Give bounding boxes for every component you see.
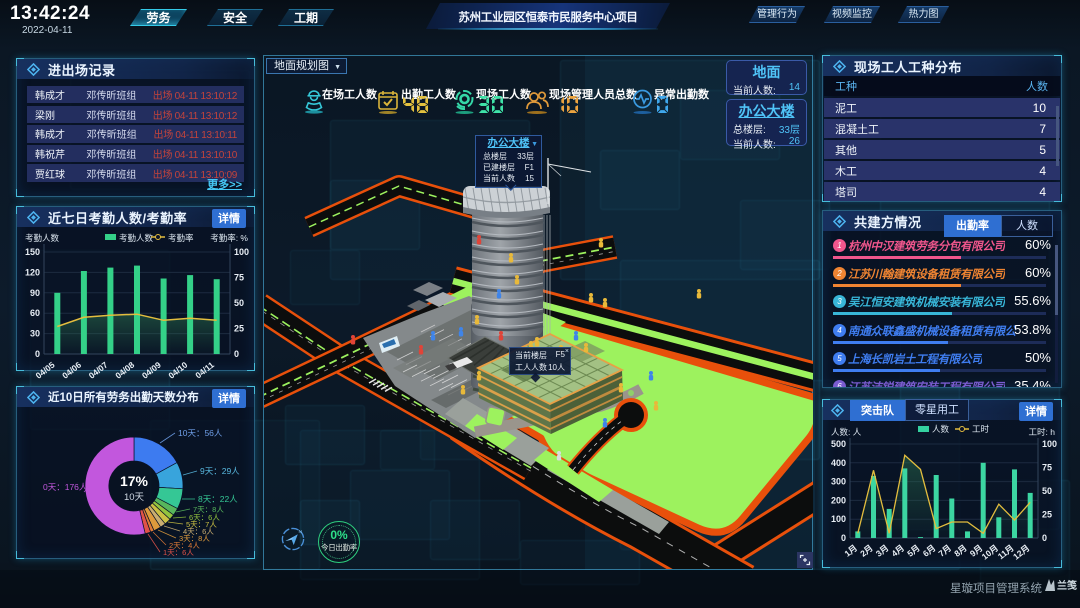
svg-text:4月: 4月 [889, 543, 906, 559]
svg-text:0: 0 [35, 349, 40, 359]
svg-text:2月: 2月 [858, 543, 875, 559]
svg-text:考勤人数: 考勤人数 [25, 233, 60, 243]
svg-text:6月: 6月 [921, 543, 938, 559]
svg-text:500: 500 [831, 439, 846, 449]
svg-text:50: 50 [1042, 486, 1052, 496]
svg-text:0: 0 [1042, 533, 1047, 543]
svg-text:0天：176人: 0天：176人 [43, 482, 88, 492]
svg-text:9天：29人: 9天：29人 [200, 466, 240, 476]
svg-text:100: 100 [234, 247, 249, 257]
svg-text:考勤人数: 考勤人数 [119, 233, 154, 243]
svg-text:400: 400 [831, 458, 846, 468]
svg-text:0: 0 [234, 349, 239, 359]
svg-text:工时: 工时 [972, 424, 990, 434]
svg-text:100: 100 [1042, 439, 1057, 449]
svg-text:17%: 17% [120, 473, 149, 489]
svg-text:60: 60 [30, 308, 40, 318]
svg-text:150: 150 [25, 247, 40, 257]
svg-text:25: 25 [234, 324, 244, 334]
svg-text:0: 0 [841, 533, 846, 543]
svg-text:5月: 5月 [905, 543, 922, 559]
svg-text:8月: 8月 [952, 543, 969, 559]
svg-text:100: 100 [831, 514, 846, 524]
svg-text:75: 75 [234, 273, 244, 283]
svg-text:90: 90 [30, 288, 40, 298]
svg-text:3月: 3月 [874, 543, 891, 559]
svg-text:7月: 7月 [936, 543, 953, 559]
svg-text:200: 200 [831, 495, 846, 505]
svg-text:考勤率: %: 考勤率: % [210, 233, 248, 243]
svg-text:人数: 人数 [932, 424, 950, 434]
svg-text:10天：56人: 10天：56人 [178, 428, 223, 438]
svg-text:300: 300 [831, 477, 846, 487]
svg-text:25: 25 [1042, 510, 1052, 520]
svg-text:12月: 12月 [1011, 543, 1031, 562]
svg-text:1天：6人: 1天：6人 [163, 548, 194, 557]
svg-text:8天：22人: 8天：22人 [198, 494, 238, 504]
svg-text:30: 30 [30, 329, 40, 339]
svg-text:50: 50 [234, 298, 244, 308]
svg-text:人数: 人: 人数: 人 [831, 427, 862, 437]
svg-text:兰笺: 兰笺 [1057, 579, 1077, 592]
svg-text:75: 75 [1042, 463, 1052, 473]
svg-text:考勤率: 考勤率 [168, 233, 194, 243]
svg-text:N: N [298, 529, 302, 535]
svg-text:工时: h: 工时: h [1029, 427, 1056, 437]
svg-text:120: 120 [25, 267, 40, 277]
svg-text:1月: 1月 [842, 543, 859, 559]
svg-text:10天: 10天 [124, 492, 145, 503]
